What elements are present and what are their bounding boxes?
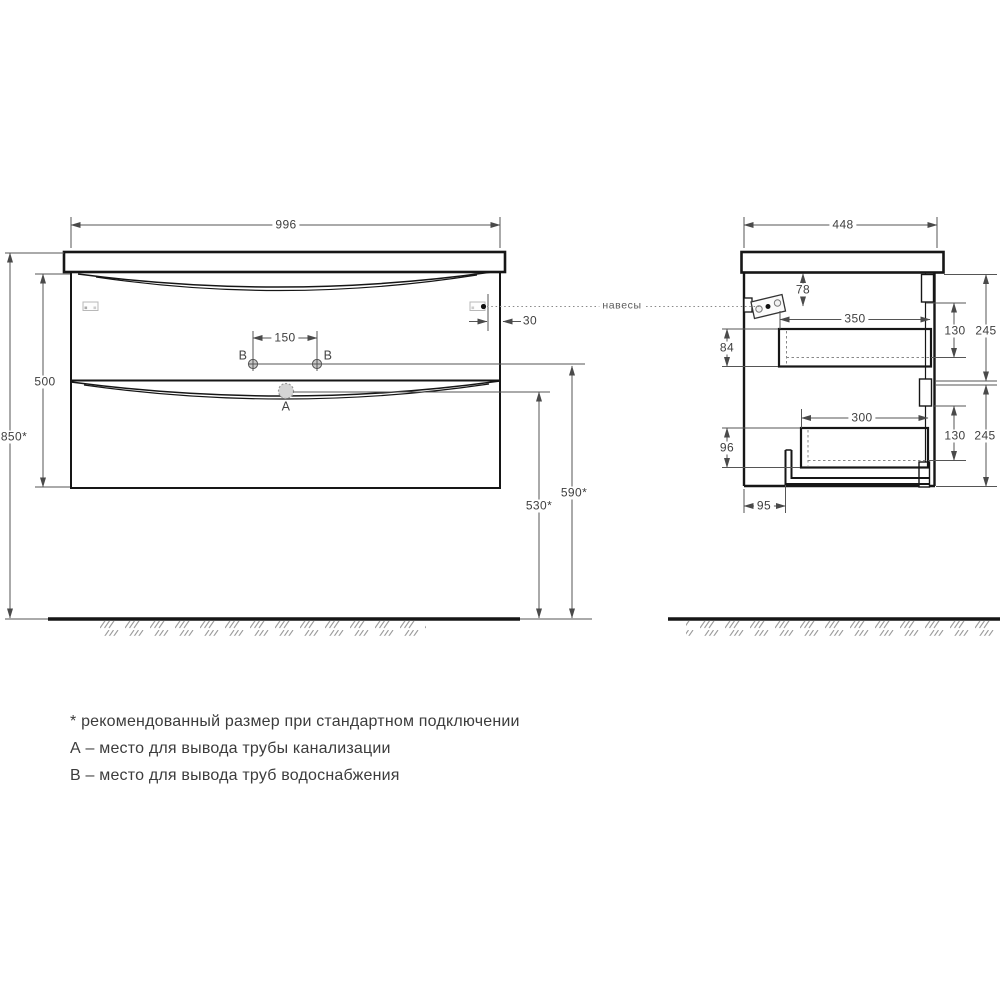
handle-right-screw <box>472 307 475 310</box>
dim-label-overall-height: 850* <box>0 431 30 444</box>
handle-left <box>83 302 98 311</box>
label-hole-b-left: B <box>239 350 248 363</box>
dim-label-top-drawer-depth: 84 <box>717 342 737 355</box>
handle-left-screw <box>85 307 88 310</box>
hinge-pivot-dot <box>766 304 771 309</box>
technical-drawing: 996 850* 500 150 30 590* 530* B B A 448 … <box>0 0 1000 1000</box>
dim-label-holes-spacing: 150 <box>271 332 298 345</box>
dim-label-supply-height: 590* <box>558 487 590 500</box>
dim-label-bottom-drawer-width: 300 <box>848 412 875 425</box>
dim-label-bottom-front-height: 245 <box>971 430 998 443</box>
hinge-wall-plate <box>744 298 752 312</box>
handle-left-screw2 <box>94 307 97 310</box>
dim-label-pipe-offset: 95 <box>754 500 774 513</box>
side-front-notch-top <box>922 275 934 303</box>
side-bottom-drawer-box <box>801 428 928 468</box>
dim-label-bottom-drawer-depth: 96 <box>717 442 737 455</box>
floor <box>5 619 1000 636</box>
dim-label-cabinet-height: 500 <box>31 376 58 389</box>
front-view <box>64 252 505 488</box>
drawing-linework <box>0 0 1000 1000</box>
label-drain-a: A <box>282 401 291 414</box>
side-view <box>742 252 944 487</box>
dim-label-top-drawer-width: 350 <box>841 313 868 326</box>
dim-label-drain-height: 530* <box>523 500 555 513</box>
dim-label-top-front-gap: 130 <box>941 325 968 338</box>
side-top-drawer-box <box>779 329 931 367</box>
hinge-screw-right <box>774 300 780 306</box>
hinges-callout-label: навесы <box>599 300 644 313</box>
front-top-drawer-curve-outer <box>78 272 492 287</box>
front-countertop <box>64 252 505 272</box>
floor-hatch-front <box>96 621 426 636</box>
hinge-reference-dot <box>481 304 486 309</box>
side-top-drawer-inner-dashed <box>787 331 930 364</box>
side-bottom-drawer-inner-dashed <box>808 430 926 466</box>
dim-label-hinge-drop: 78 <box>793 284 813 297</box>
side-front-notch-middle <box>920 379 932 406</box>
note-a-drain: А – место для вывода трубы канализации <box>70 739 391 758</box>
dim-label-top-front-height: 245 <box>972 325 999 338</box>
front-top-drawer-curve-inner <box>96 275 477 291</box>
dim-label-bottom-front-gap: 130 <box>941 430 968 443</box>
label-hole-b-right: B <box>324 350 333 363</box>
dim-label-hinge-offset: 30 <box>523 315 537 328</box>
side-countertop <box>742 252 944 273</box>
floor-hatch-side <box>686 621 1000 636</box>
dim-label-front-width: 996 <box>272 219 299 232</box>
drain-pipe-inner <box>792 450 931 478</box>
note-b-supply: В – место для вывода труб водоснабжения <box>70 766 400 785</box>
drain-hole <box>279 384 294 399</box>
note-asterisk: * рекомендованный размер при стандартном… <box>70 712 520 731</box>
dim-label-depth: 448 <box>829 219 856 232</box>
